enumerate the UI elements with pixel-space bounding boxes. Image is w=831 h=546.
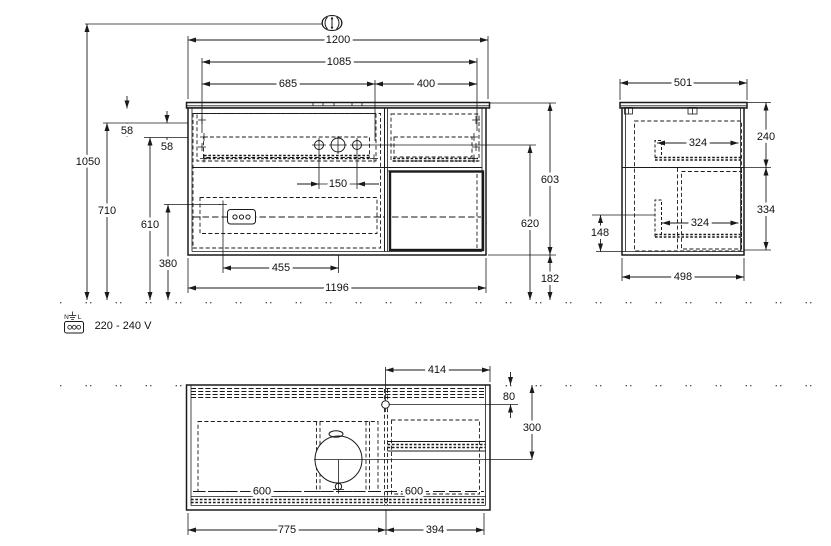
dim-height-1050: 1050 <box>76 156 100 168</box>
dim-drawer-240: 240 <box>757 131 775 143</box>
dim-width-414: 414 <box>428 364 446 376</box>
dim-offset-80: 80 <box>503 391 515 403</box>
dim-tap-150: 150 <box>329 178 347 190</box>
height-adjustable-icon <box>322 16 342 31</box>
dim-height-620: 620 <box>521 218 539 230</box>
front-elevation-view <box>187 103 537 256</box>
plan-bottom-view: 600 600 <box>187 367 533 510</box>
dim-width-400: 400 <box>417 78 435 90</box>
side-section-view <box>620 103 747 256</box>
dim-width-394: 394 <box>426 524 444 536</box>
dim-height-603: 603 <box>541 174 559 186</box>
dim-rail-324-bottom: 324 <box>691 217 709 229</box>
dim-height-380: 380 <box>159 258 177 270</box>
dim-height-148: 148 <box>591 227 609 239</box>
electrical-connection: N L 220 - 240 V <box>64 312 152 334</box>
dim-rail-600-left: 600 <box>253 485 271 497</box>
dim-gap-182: 182 <box>541 273 559 285</box>
dim-outlet-455: 455 <box>272 262 290 274</box>
countertop-front <box>187 103 490 109</box>
dim-depth-501: 501 <box>674 77 692 89</box>
terminal-l-label: L <box>78 314 82 321</box>
dim-width-1200: 1200 <box>326 34 350 46</box>
dim-width-1085: 1085 <box>327 56 351 68</box>
cabinet-body-side <box>622 108 744 255</box>
dim-height-610: 610 <box>141 219 159 231</box>
dim-width-775: 775 <box>278 524 296 536</box>
power-outlet-icon <box>228 210 256 225</box>
dim-body-1196: 1196 <box>325 282 349 294</box>
terminal-n-label: N <box>64 314 69 321</box>
dim-rail-600-right: 600 <box>405 485 423 497</box>
dim-rail-324-top: 324 <box>689 137 707 149</box>
dim-depth-300: 300 <box>523 422 541 434</box>
dim-width-685: 685 <box>279 78 297 90</box>
dim-offset-58-top: 58 <box>121 125 133 137</box>
ground-symbol-icon <box>69 312 76 320</box>
technical-drawing-canvas: 1200 1085 685 400 1050 710 610 380 <box>0 0 831 546</box>
dim-drawer-334: 334 <box>757 204 775 216</box>
dim-height-710: 710 <box>98 205 116 217</box>
dim-depth-498: 498 <box>674 271 692 283</box>
countertop-side <box>620 103 747 109</box>
power-socket-icon: N L <box>64 312 83 334</box>
drawing-svg: 1200 1085 685 400 1050 710 610 380 <box>0 0 831 546</box>
dim-offset-58-mid: 58 <box>161 141 173 153</box>
voltage-label: 220 - 240 V <box>95 320 153 332</box>
